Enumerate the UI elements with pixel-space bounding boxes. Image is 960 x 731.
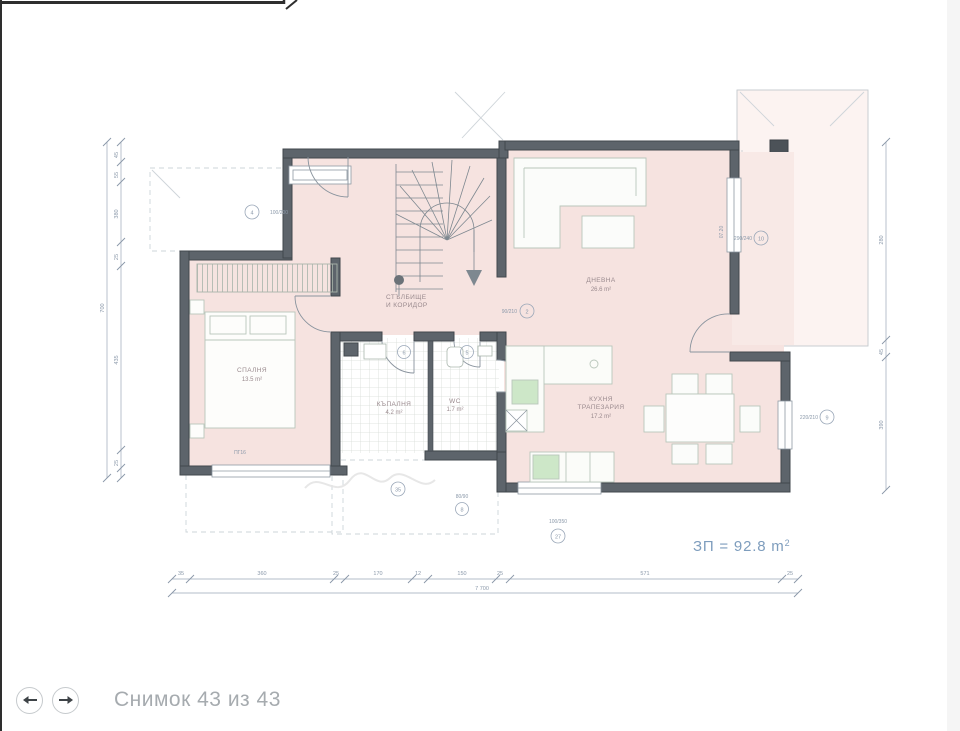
svg-text:170: 170 <box>373 571 382 577</box>
photo-counter-caption: Снимок 43 из 43 <box>114 688 281 712</box>
svg-text:И КОРИДОР: И КОРИДОР <box>386 302 428 309</box>
svg-text:4.2 m²: 4.2 m² <box>385 410 402 416</box>
stairs-label: СТЪЛБИЩЕ <box>386 294 427 301</box>
svg-text:7 700: 7 700 <box>475 586 489 592</box>
svg-text:571: 571 <box>640 571 649 577</box>
svg-text:220/210: 220/210 <box>800 415 818 421</box>
svg-text:25: 25 <box>497 571 503 577</box>
next-photo-button[interactable] <box>52 687 79 714</box>
svg-text:12: 12 <box>415 571 421 577</box>
bath-label: КЪПАЛНЯ <box>377 401 412 408</box>
bedroom-label: СПАЛНЯ <box>237 367 267 374</box>
living-label: ДНЕВНА <box>586 277 615 284</box>
kitchen-label: КУХНЯ <box>589 396 613 403</box>
svg-text:17.2 m²: 17.2 m² <box>591 414 611 420</box>
svg-text:5: 5 <box>465 351 468 357</box>
svg-text:25: 25 <box>114 460 120 466</box>
svg-text:380: 380 <box>114 209 120 218</box>
svg-text:1.7 m²: 1.7 m² <box>446 407 463 413</box>
floor-plan-image[interactable]: 35 360 25 170 12 150 25 571 25 7 700 45 … <box>0 0 960 731</box>
svg-text:290/240: 290/240 <box>734 236 752 242</box>
svg-text:13.5 m²: 13.5 m² <box>242 377 262 383</box>
svg-text:100/200: 100/200 <box>270 210 288 216</box>
svg-text:55: 55 <box>114 172 120 178</box>
wc-label: WC <box>449 398 461 405</box>
svg-text:2: 2 <box>525 310 528 316</box>
svg-text:ТРАПЕЗАРИЯ: ТРАПЕЗАРИЯ <box>578 404 625 411</box>
svg-text:25: 25 <box>114 254 120 260</box>
svg-text:26.6 m²: 26.6 m² <box>591 287 611 293</box>
svg-text:280: 280 <box>879 235 885 244</box>
svg-text:45: 45 <box>879 349 885 355</box>
svg-text:35: 35 <box>395 488 401 494</box>
svg-text:25: 25 <box>787 571 793 577</box>
svg-text:07.20: 07.20 <box>719 226 725 239</box>
arrow-left-icon <box>23 695 37 705</box>
svg-text:100/350: 100/350 <box>549 519 567 525</box>
svg-text:390: 390 <box>879 420 885 429</box>
svg-text:25: 25 <box>333 571 339 577</box>
svg-text:435: 435 <box>114 355 120 364</box>
svg-text:ПГ16: ПГ16 <box>234 450 246 456</box>
viewer-bar: Снимок 43 из 43 <box>16 684 281 716</box>
svg-text:45: 45 <box>114 152 120 158</box>
svg-text:4: 4 <box>250 211 253 217</box>
svg-text:90/210: 90/210 <box>502 309 518 315</box>
svg-text:150: 150 <box>457 571 466 577</box>
svg-text:360: 360 <box>257 571 266 577</box>
svg-text:10: 10 <box>758 237 764 243</box>
svg-text:35: 35 <box>178 571 184 577</box>
svg-text:27: 27 <box>555 535 561 541</box>
svg-text:80/90: 80/90 <box>456 494 469 500</box>
total-area-label: ЗП = 92.8 m2 <box>693 538 790 555</box>
svg-text:9: 9 <box>825 416 828 422</box>
arrow-right-icon <box>59 695 73 705</box>
svg-text:8: 8 <box>460 508 463 514</box>
prev-photo-button[interactable] <box>16 687 43 714</box>
svg-text:700: 700 <box>100 303 106 312</box>
svg-text:6: 6 <box>402 351 405 357</box>
